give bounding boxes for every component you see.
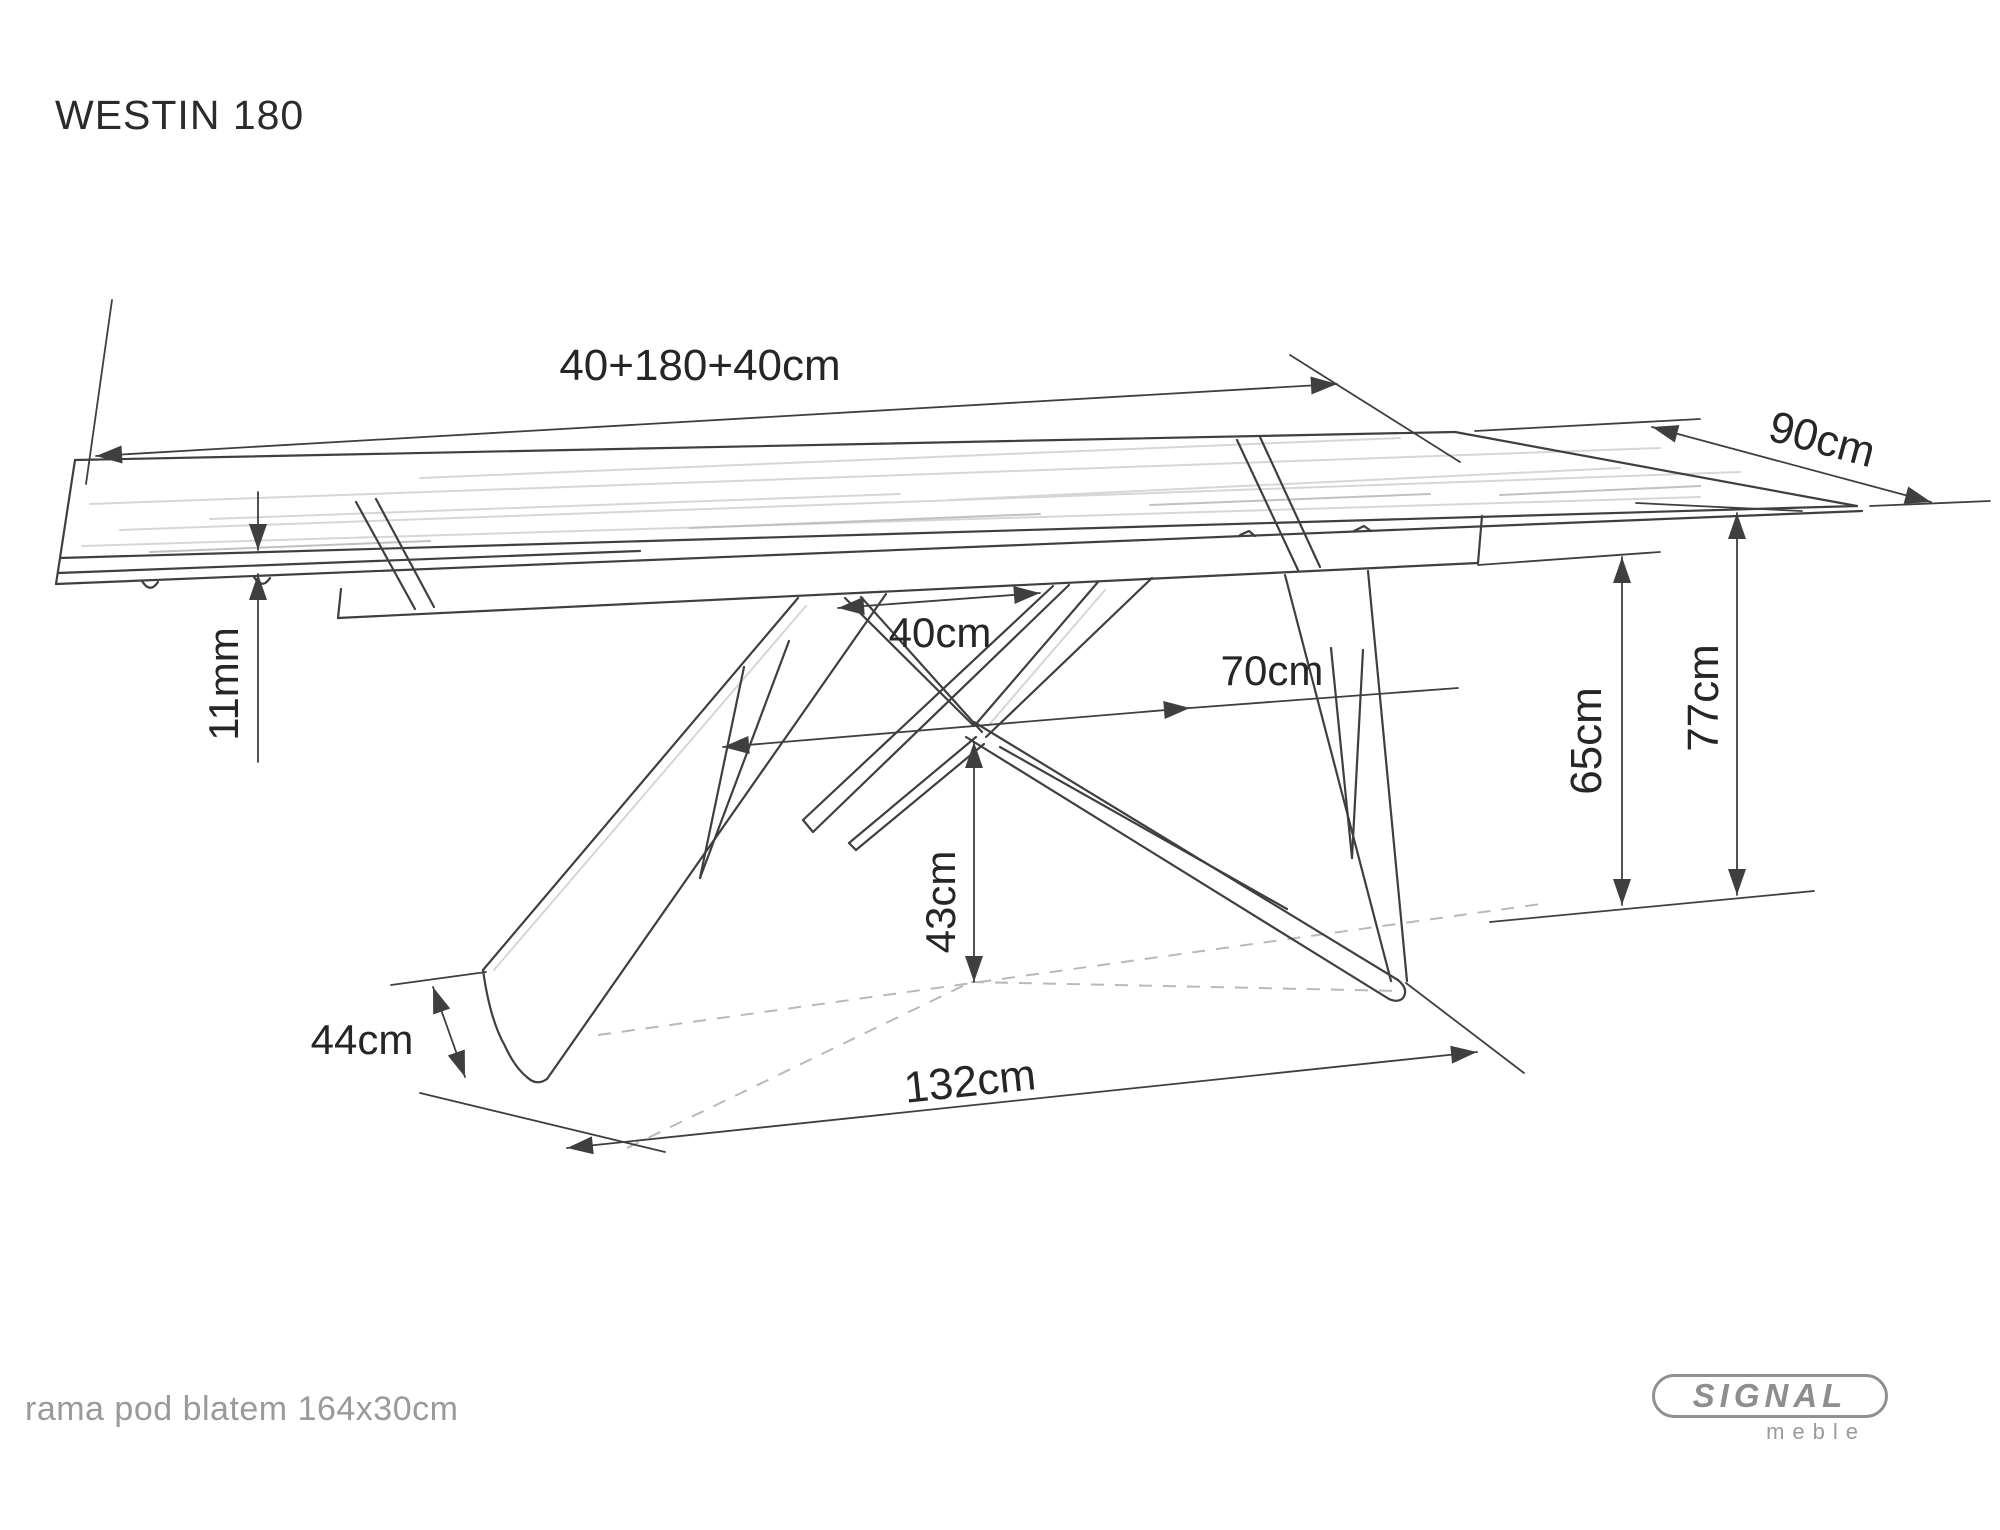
tabletop-outline <box>56 432 1862 618</box>
dim-underframe-height: 65cm <box>1565 687 1609 795</box>
table-line-drawing <box>0 0 2000 1530</box>
dim-table-height: 77cm <box>1682 644 1726 752</box>
dim-length-total: 40+180+40cm <box>559 344 840 388</box>
dim-leg-top-span: 40cm <box>889 612 992 654</box>
floor-projection-dashed-lines <box>598 903 1548 1148</box>
frame-note: rama pod blatem 164x30cm <box>25 1390 458 1429</box>
dim-leg-cross-height: 43cm <box>920 851 962 954</box>
signal-logo-wordmark: SIGNAL <box>1652 1374 1888 1418</box>
tabletop-grain <box>82 438 1740 970</box>
dim-foot-depth: 44cm <box>311 1019 414 1061</box>
tabletop-grain-dark <box>150 486 1700 552</box>
signal-logo-subtitle: meble <box>1652 1419 1888 1445</box>
dim-leg-mid-span: 70cm <box>1221 650 1324 692</box>
diagram-page: WESTIN 180 40+180+40cm 90cm 11mm 40cm 70… <box>0 0 2000 1530</box>
page-title: WESTIN 180 <box>55 92 304 139</box>
signal-logo: SIGNAL meble <box>1652 1374 1888 1445</box>
dim-top-thickness: 11mm <box>203 627 245 741</box>
